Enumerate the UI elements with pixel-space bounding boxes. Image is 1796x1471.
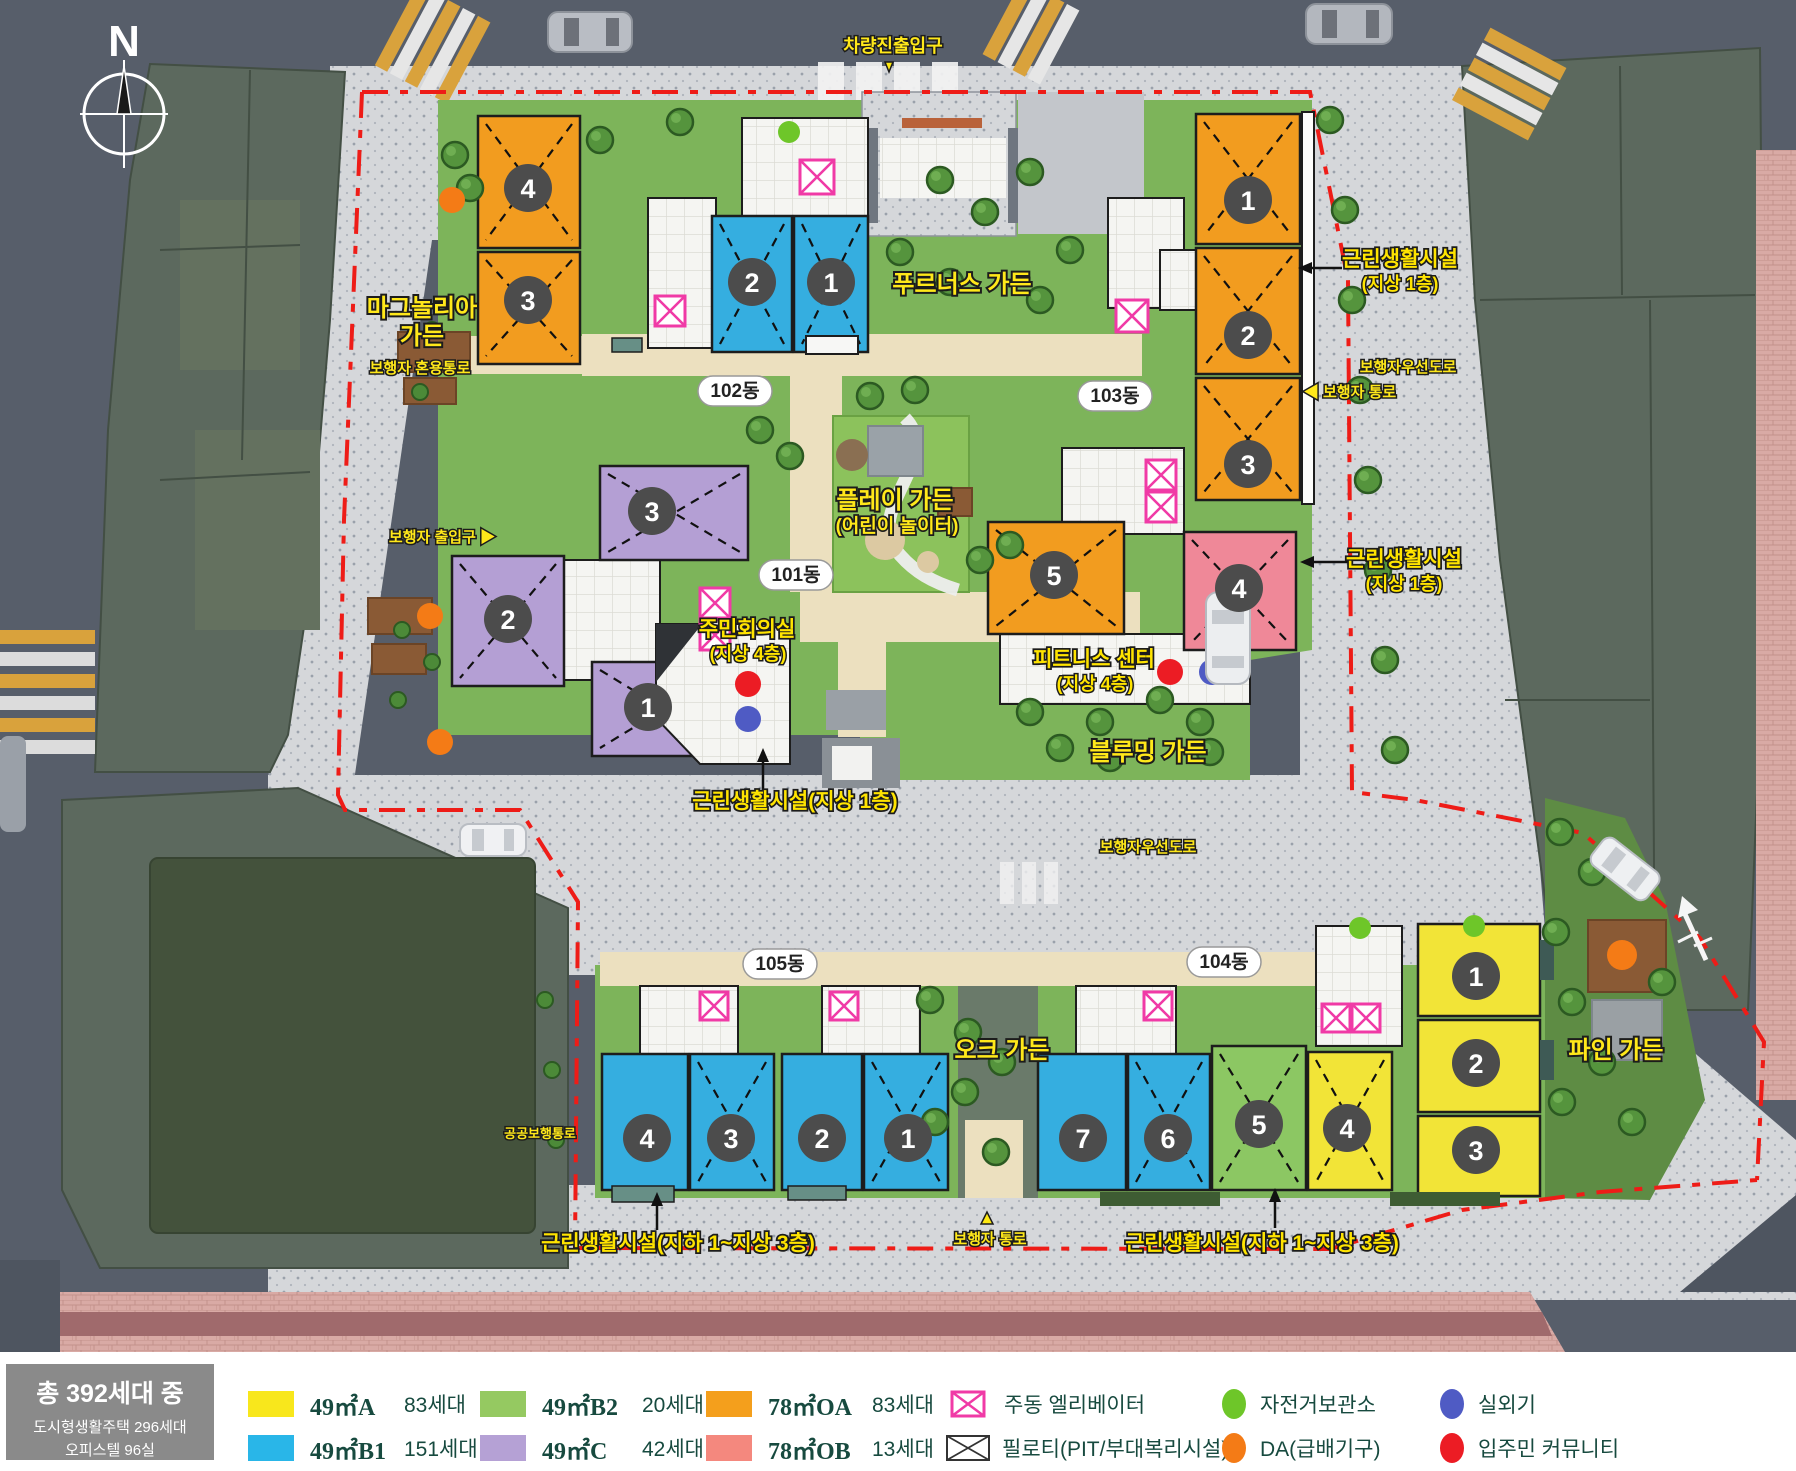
elevator-icon	[830, 992, 858, 1020]
svg-text:6: 6	[1160, 1124, 1175, 1154]
svg-text:1: 1	[1240, 186, 1255, 216]
elevator-icon	[655, 296, 685, 326]
prunus-garden-label: 푸르너스 가든	[892, 271, 1031, 298]
da-dot	[427, 729, 453, 755]
legend-type-49C: 49㎡C 42세대	[480, 1432, 704, 1464]
ped-priority-label: 보행자우선도로	[1100, 839, 1197, 856]
svg-text:1: 1	[823, 268, 838, 298]
legend-type-78OA: 78㎡OA 83세대	[706, 1388, 934, 1420]
da-dot	[1222, 1433, 1246, 1463]
community-dot	[1440, 1433, 1464, 1463]
elevator-icon	[700, 588, 730, 618]
elevator-icon	[1322, 1004, 1350, 1032]
community-dot	[735, 671, 761, 697]
retail-label: 근린생활시설(지하 1~지상 3층)	[541, 1232, 815, 1255]
svg-text:104동: 104동	[1199, 952, 1248, 973]
svg-text:105동: 105동	[755, 954, 804, 975]
da-dot	[1607, 940, 1637, 970]
bicycle-dot	[1463, 915, 1485, 937]
swatch-49B1	[248, 1435, 294, 1461]
fitness-center-label: 피트니스 센터	[1033, 648, 1155, 671]
community-room-label: 주민회의실	[699, 618, 796, 641]
vehicle-entrance-label: 차량진출입구	[843, 35, 942, 56]
svg-text:1: 1	[1468, 962, 1483, 992]
car-partial	[0, 736, 26, 832]
legend-type-49B1: 49㎡B1 151세대	[248, 1432, 478, 1464]
svg-text:4: 4	[1231, 574, 1246, 604]
legend-community: 입주민 커뮤니티	[1440, 1432, 1619, 1464]
elevator-icon	[700, 992, 728, 1020]
swatch-49A	[248, 1391, 294, 1417]
swatch-49B2	[480, 1391, 526, 1417]
svg-text:1: 1	[640, 693, 655, 723]
retail-label: 근린생활시설	[1342, 248, 1458, 271]
svg-text:(지상 4층): (지상 4층)	[710, 644, 787, 664]
elevator-icon	[1146, 492, 1176, 522]
legend-bar: 총 392세대 중 도시형생활주택 296세대 오피스텔 96실 49㎡A 83…	[0, 1352, 1796, 1471]
svg-text:2: 2	[500, 605, 515, 635]
svg-text:101동: 101동	[771, 565, 820, 586]
da-dot	[439, 187, 465, 213]
svg-text:(어린이 놀이터): (어린이 놀이터)	[836, 515, 959, 537]
hedge	[1100, 1192, 1220, 1206]
svg-text:(지상 4층): (지상 4층)	[1057, 674, 1134, 694]
svg-text:(지상 1층): (지상 1층)	[1366, 574, 1443, 594]
officetel-units: 오피스텔 96실	[6, 1439, 214, 1460]
legend-bicycle: 자전거보관소	[1222, 1388, 1376, 1420]
elevator-icon	[800, 160, 834, 194]
hedge	[1390, 1192, 1500, 1206]
legend-type-78OB: 78㎡OB 13세대	[706, 1432, 934, 1464]
ped-priority-label: 보행자우선도로	[1360, 359, 1457, 376]
oak-garden-label: 오크 가든	[955, 1037, 1050, 1064]
elevator-icon	[1116, 300, 1148, 332]
svg-text:2: 2	[1240, 321, 1255, 351]
total-units: 총 392세대 중	[6, 1374, 214, 1410]
svg-text:5: 5	[1046, 561, 1061, 591]
ped-gate-label: 보행자 출입구 ▶	[389, 529, 495, 546]
svg-text:102동: 102동	[710, 381, 759, 402]
pine-garden-label: 파인 가든	[1569, 1037, 1664, 1064]
legend-piloti: 필로티(PIT/부대복리시설)	[946, 1432, 1228, 1464]
community-dot	[1157, 659, 1183, 685]
svg-text:가든: 가든	[400, 323, 444, 350]
svg-text:N: N	[108, 17, 140, 66]
svg-text:103동: 103동	[1090, 386, 1139, 407]
swatch-49C	[480, 1435, 526, 1461]
bicycle-dot	[1349, 917, 1371, 939]
svg-text:4: 4	[639, 1124, 654, 1154]
svg-text:7: 7	[1075, 1124, 1090, 1154]
svg-text:3: 3	[1468, 1136, 1483, 1166]
legend-type-49B2: 49㎡B2 20세대	[480, 1388, 704, 1420]
elevator-icon	[1144, 992, 1172, 1020]
svg-text:4: 4	[520, 174, 535, 204]
outdoor-unit-dot	[735, 706, 761, 732]
ped-mixed-label: 보행자 혼용통로	[370, 360, 471, 377]
svg-text:1: 1	[900, 1124, 915, 1154]
svg-text:3: 3	[1240, 450, 1255, 480]
swatch-78OB	[706, 1435, 752, 1461]
svg-text:4: 4	[1339, 1114, 1354, 1144]
retail-label: 근린생활시설(지상 1층)	[692, 790, 897, 813]
da-dot	[417, 603, 443, 629]
elevator-icon	[1146, 460, 1176, 490]
legend-elevator: 주동 엘리베이터	[950, 1388, 1145, 1420]
svg-text:2: 2	[814, 1124, 829, 1154]
legend-da: DA(급배기구)	[1222, 1432, 1380, 1464]
svg-text:3: 3	[723, 1124, 738, 1154]
plan-canvas: N 4 3 2 1 1 2 3 3 2 1 5 4 4 3 2 1 7 6 5 …	[0, 0, 1796, 1352]
svg-text:3: 3	[644, 497, 659, 527]
site-plan: N 4 3 2 1 1 2 3 3 2 1 5 4 4 3 2 1 7 6 5 …	[0, 0, 1796, 1471]
svg-text:5: 5	[1251, 1110, 1266, 1140]
retail-label: 근린생활시설(지하 1~지상 3층)	[1125, 1232, 1399, 1255]
svg-text:3: 3	[520, 286, 535, 316]
svg-text:2: 2	[1468, 1049, 1483, 1079]
elevator-icon	[1352, 1004, 1380, 1032]
svg-text:2: 2	[744, 268, 759, 298]
svg-text:(지상 1층): (지상 1층)	[1362, 274, 1439, 294]
legend-outdoor-unit: 실외기	[1440, 1388, 1536, 1420]
retail-label: 근린생활시설	[1346, 548, 1462, 571]
ped-path-label: 보행자 통로	[953, 1231, 1026, 1248]
legend-type-49A: 49㎡A 83세대	[248, 1388, 466, 1420]
legend-summary-box: 총 392세대 중 도시형생활주택 296세대 오피스텔 96실	[6, 1364, 214, 1460]
ped-path-label: ◀ 보행자 통로	[1304, 384, 1397, 401]
bicycle-dot	[1222, 1389, 1246, 1419]
elevator-icon	[950, 1390, 986, 1418]
blooming-garden-label: 블루밍 가든	[1089, 739, 1206, 766]
play-garden-label: 플레이 가든	[836, 487, 953, 514]
magnolia-garden-label: 마그놀리아	[367, 295, 477, 322]
piloti-icon	[946, 1434, 990, 1462]
swatch-78OA	[706, 1391, 752, 1417]
bicycle-dot	[778, 121, 800, 143]
housing-units: 도시형생활주택 296세대	[6, 1416, 214, 1437]
public-walk-label: 공공보행통로	[504, 1126, 576, 1141]
outdoor-unit-dot	[1440, 1389, 1464, 1419]
